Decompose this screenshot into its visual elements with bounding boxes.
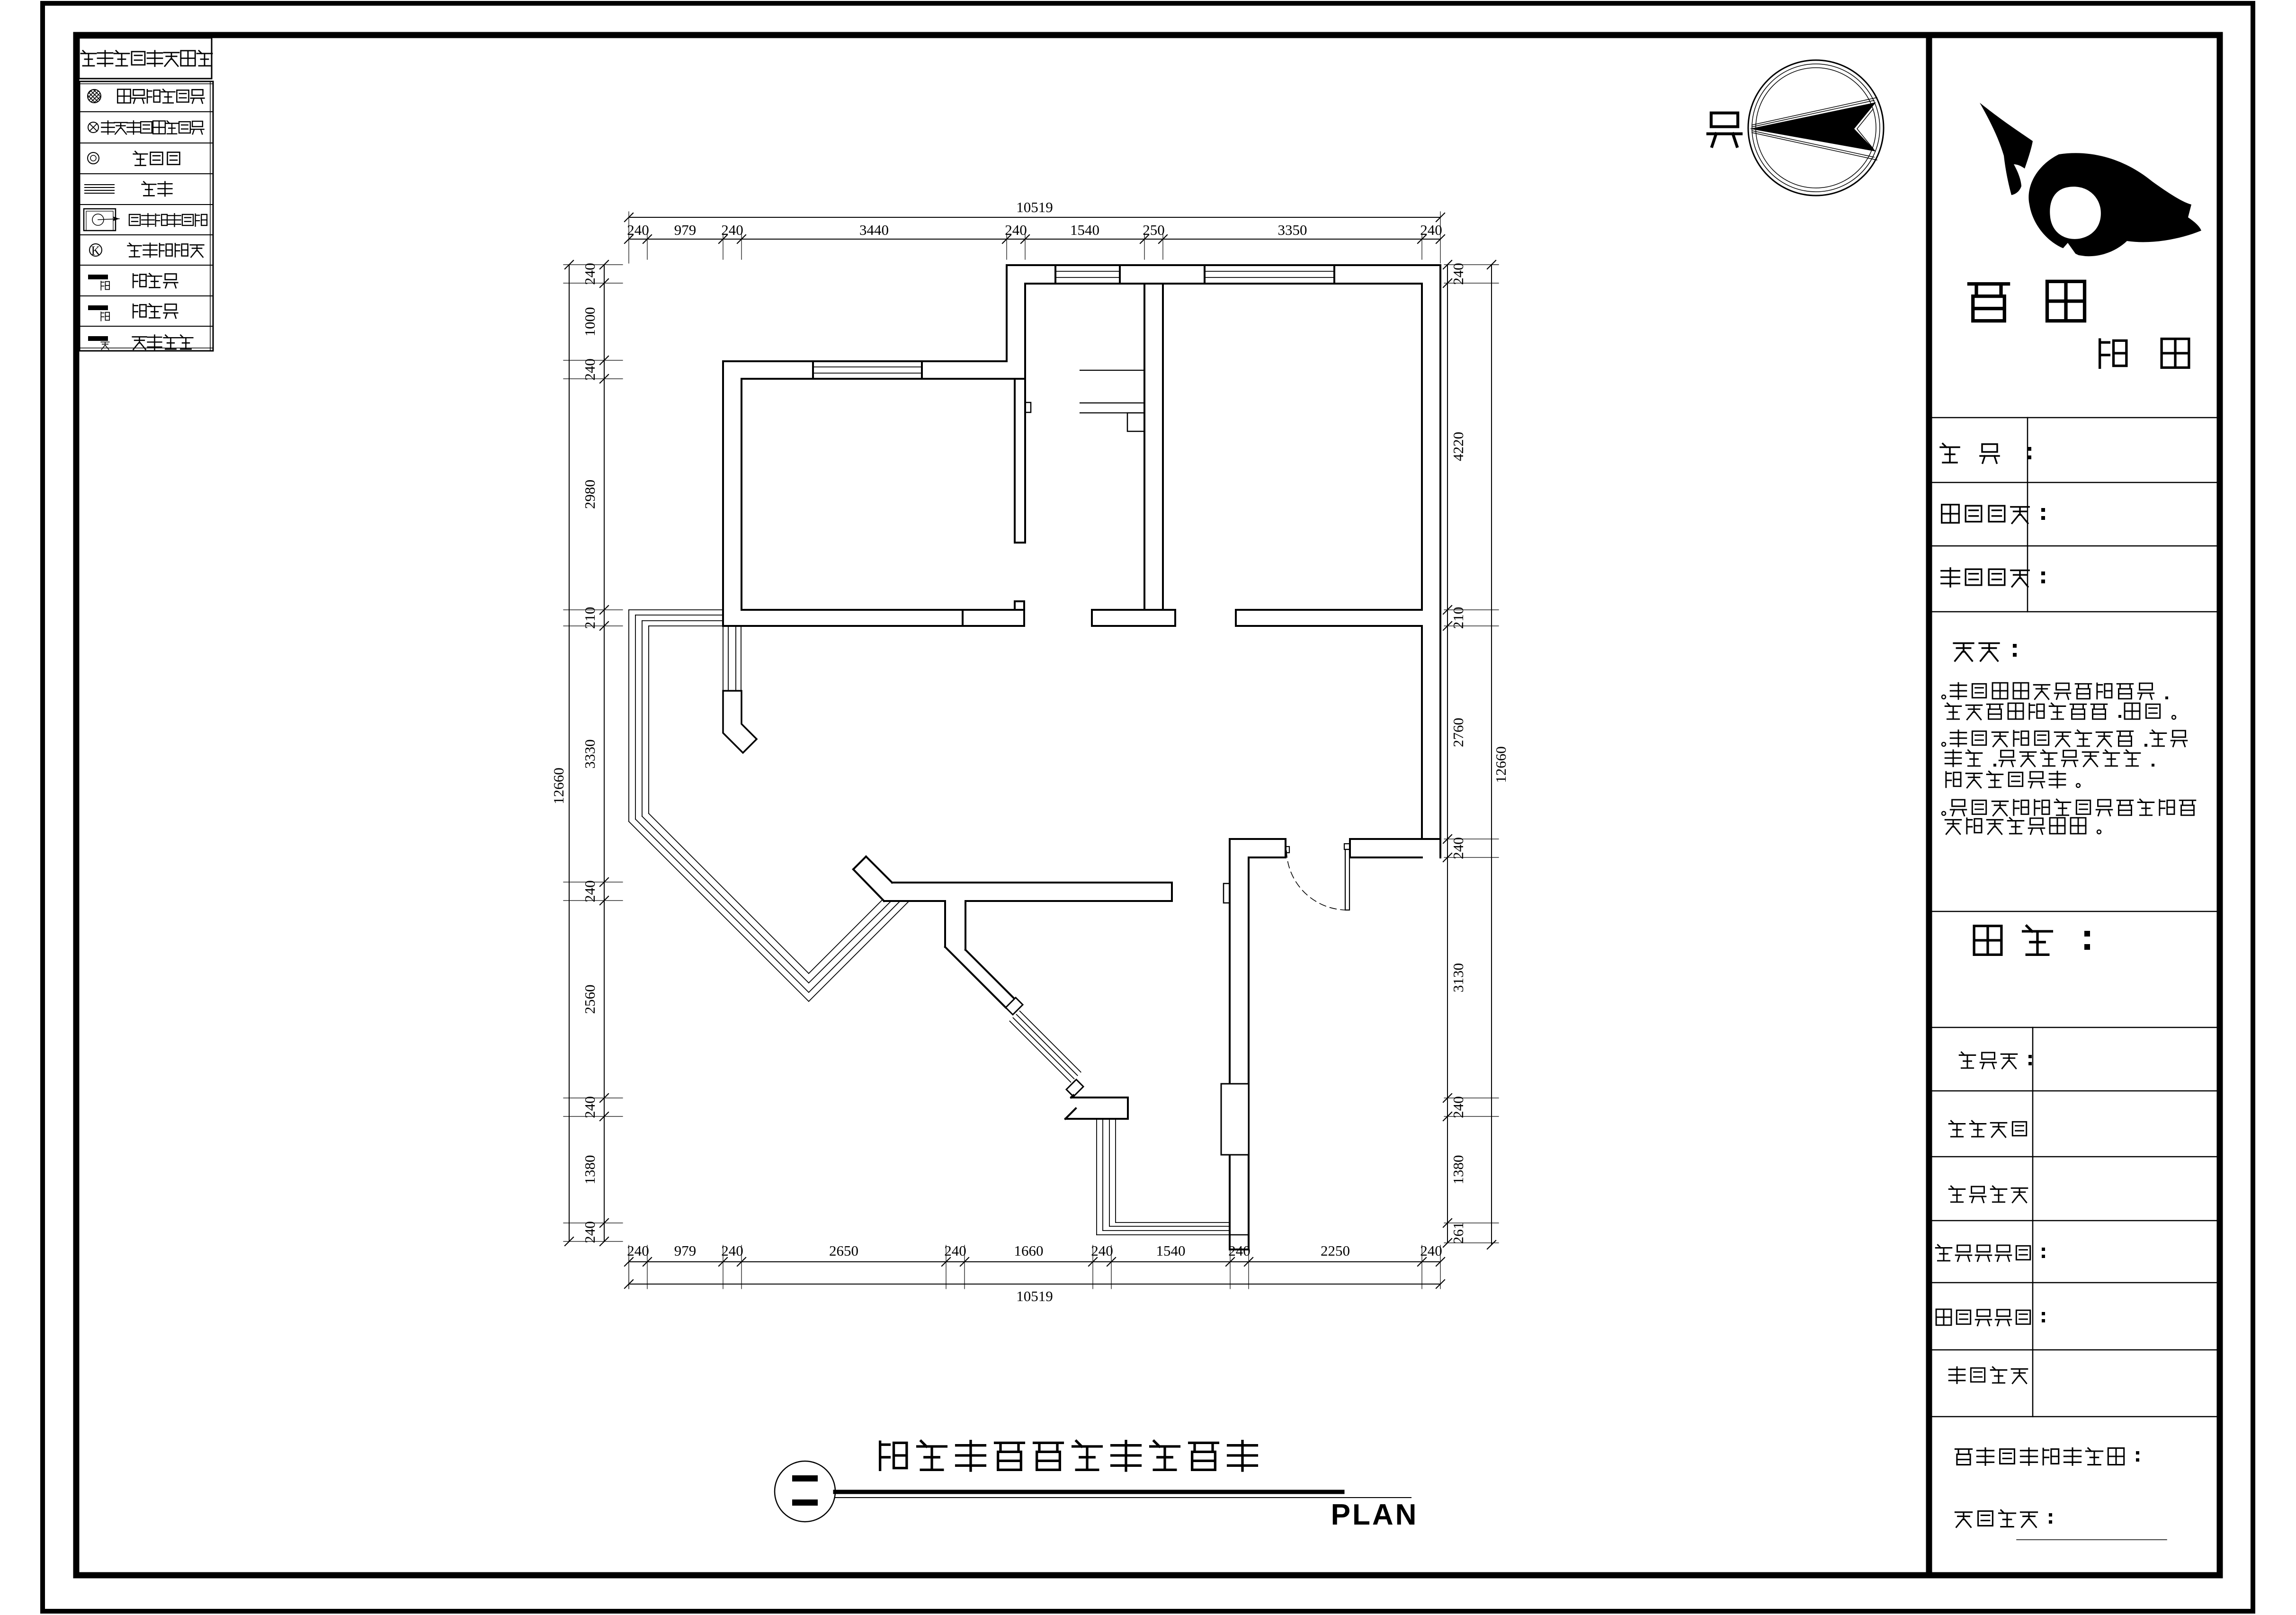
svg-text:3330: 3330 <box>581 740 598 769</box>
svg-text:240: 240 <box>1005 222 1027 238</box>
svg-text:240: 240 <box>581 1096 598 1118</box>
svg-text:240: 240 <box>581 880 598 902</box>
svg-text:240: 240 <box>1450 1096 1466 1118</box>
svg-text:4220: 4220 <box>1450 432 1466 461</box>
svg-text:240: 240 <box>1450 263 1466 285</box>
svg-text:240: 240 <box>627 1242 649 1259</box>
svg-text:1000: 1000 <box>581 307 598 337</box>
svg-text:3440: 3440 <box>859 222 889 238</box>
svg-text:2560: 2560 <box>581 985 598 1014</box>
svg-text:979: 979 <box>674 222 697 238</box>
svg-text:210: 210 <box>581 607 598 629</box>
svg-text:261: 261 <box>1450 1222 1466 1244</box>
svg-text:250: 250 <box>1143 222 1165 238</box>
svg-text:240: 240 <box>944 1242 966 1259</box>
svg-text:1540: 1540 <box>1070 222 1099 238</box>
svg-text:2760: 2760 <box>1450 718 1466 747</box>
svg-text:1660: 1660 <box>1014 1242 1044 1259</box>
svg-text:240: 240 <box>1420 222 1442 238</box>
svg-text:240: 240 <box>1450 837 1466 859</box>
svg-text:979: 979 <box>674 1242 697 1259</box>
svg-text:240: 240 <box>1091 1242 1113 1259</box>
svg-text:10519: 10519 <box>1016 199 1053 215</box>
svg-text:K: K <box>91 244 100 258</box>
svg-text:2980: 2980 <box>581 480 598 509</box>
svg-text:240: 240 <box>627 222 649 238</box>
svg-text:2250: 2250 <box>1321 1242 1350 1259</box>
svg-text:2650: 2650 <box>829 1242 858 1259</box>
svg-text:240: 240 <box>721 1242 743 1259</box>
svg-text:240: 240 <box>1420 1242 1442 1259</box>
svg-text:240: 240 <box>1228 1242 1251 1259</box>
svg-text:10519: 10519 <box>1016 1288 1053 1304</box>
svg-text:210: 210 <box>1450 607 1466 629</box>
svg-text:1540: 1540 <box>1156 1242 1186 1259</box>
svg-text:12660: 12660 <box>550 767 567 804</box>
svg-text:12660: 12660 <box>1492 746 1509 783</box>
svg-text:1380: 1380 <box>1450 1155 1466 1185</box>
svg-text:3350: 3350 <box>1278 222 1307 238</box>
svg-text:PLAN: PLAN <box>1331 1499 1419 1531</box>
svg-text:240: 240 <box>581 263 598 285</box>
svg-text:240: 240 <box>581 358 598 381</box>
svg-text:1380: 1380 <box>581 1155 598 1185</box>
svg-text:240: 240 <box>721 222 743 238</box>
svg-text:240: 240 <box>581 1221 598 1243</box>
svg-text:3130: 3130 <box>1450 963 1466 992</box>
